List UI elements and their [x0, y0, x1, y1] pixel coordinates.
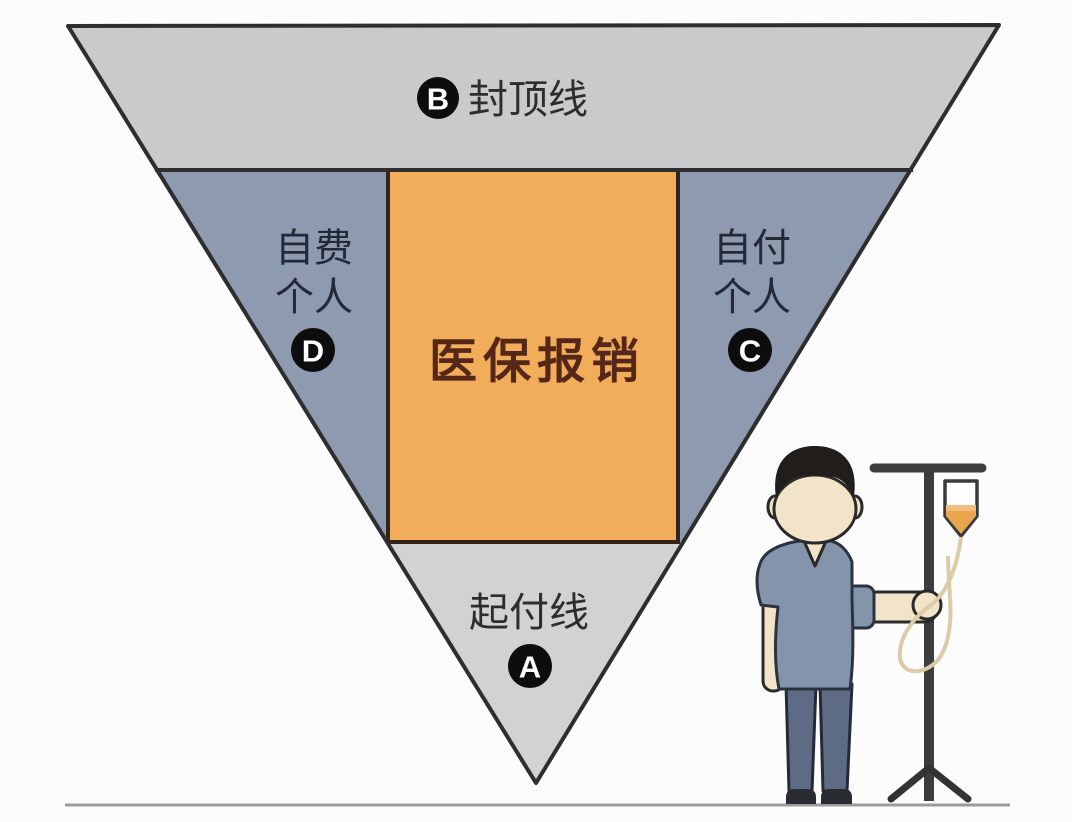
- medical-insurance-funnel-diagram: B 封顶线 自费 个人 D 医保报销 自付 个人 C 起付线 A: [0, 0, 1072, 822]
- patient-leg-right: [820, 684, 852, 791]
- iv-bag-liquid-surface: [946, 505, 976, 511]
- reimbursement-label: 医保报销: [429, 336, 645, 389]
- right-region-line2: 个人: [713, 277, 791, 320]
- left-region-line1: 自费: [275, 228, 353, 271]
- top-region-label-group: B 封顶线: [417, 77, 588, 122]
- patient-figure-icon: [757, 446, 941, 804]
- diagram-canvas: B 封顶线 自费 个人 D 医保报销 自付 个人 C 起付线 A: [0, 0, 1072, 822]
- center-region-label-group: 医保报销: [429, 336, 645, 389]
- left-region-line2: 个人: [275, 277, 353, 320]
- patient-leg-left: [786, 684, 816, 791]
- cap-line-label: 封顶线: [468, 78, 588, 122]
- badge-c-letter: C: [739, 334, 761, 369]
- badge-d-letter: D: [302, 334, 324, 369]
- iv-tripod-leg-left: [891, 768, 929, 799]
- patient-shoe-left: [786, 789, 816, 804]
- deductible-line-label: 起付线: [469, 591, 589, 635]
- iv-tripod-leg-right: [929, 768, 968, 799]
- patient-shoe-right: [821, 789, 852, 804]
- iv-drip-stand-icon: [874, 468, 982, 801]
- badge-a-letter: A: [519, 650, 541, 685]
- patient-face: [774, 475, 856, 543]
- right-region-line1: 自付: [713, 228, 791, 271]
- badge-b-letter: B: [427, 82, 449, 117]
